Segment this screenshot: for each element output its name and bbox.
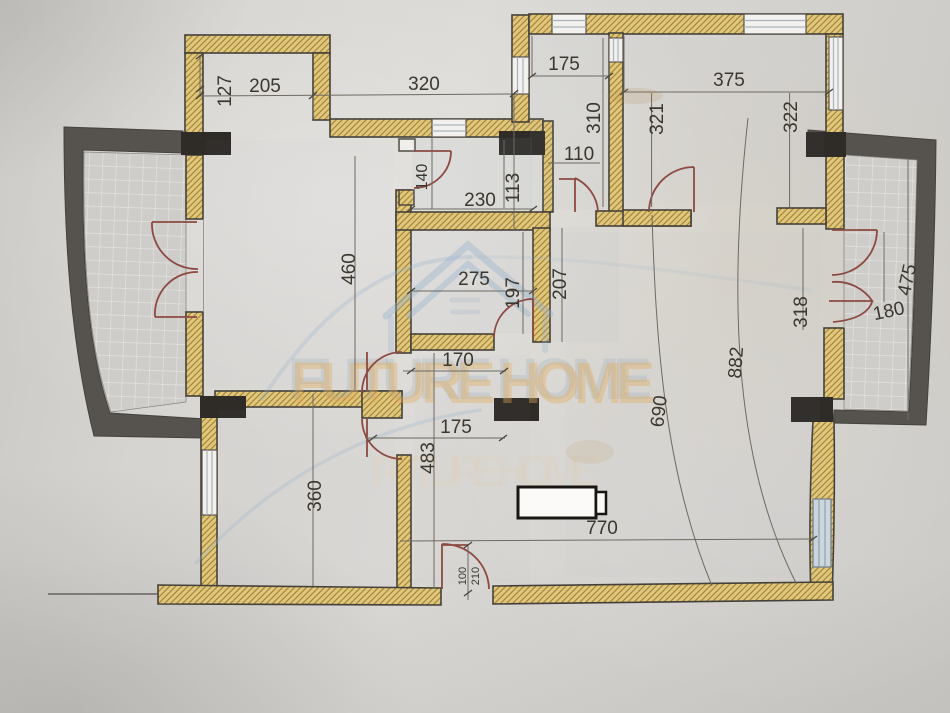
svg-text:882: 882 <box>725 346 748 379</box>
svg-text:175: 175 <box>440 417 472 438</box>
svg-text:170: 170 <box>442 350 474 371</box>
svg-text:310: 310 <box>584 102 605 134</box>
svg-text:375: 375 <box>713 70 745 91</box>
svg-text:770: 770 <box>586 518 618 539</box>
svg-text:230: 230 <box>464 190 496 211</box>
svg-text:205: 205 <box>249 76 281 97</box>
svg-text:100: 100 <box>457 567 469 585</box>
svg-text:110: 110 <box>564 144 594 165</box>
svg-text:321: 321 <box>647 103 668 135</box>
svg-text:140: 140 <box>414 164 431 191</box>
svg-text:320: 320 <box>408 74 440 95</box>
svg-text:197: 197 <box>503 277 524 309</box>
svg-text:207: 207 <box>550 268 571 300</box>
svg-text:483: 483 <box>418 442 439 474</box>
svg-text:360: 360 <box>305 480 326 512</box>
svg-text:127: 127 <box>215 75 236 107</box>
svg-text:690: 690 <box>647 394 672 428</box>
svg-text:322: 322 <box>781 101 802 133</box>
svg-text:175: 175 <box>548 54 580 75</box>
svg-text:318: 318 <box>791 296 812 328</box>
svg-text:113: 113 <box>503 173 524 203</box>
svg-text:460: 460 <box>339 253 360 285</box>
svg-text:275: 275 <box>458 269 490 290</box>
svg-text:210: 210 <box>470 567 482 585</box>
